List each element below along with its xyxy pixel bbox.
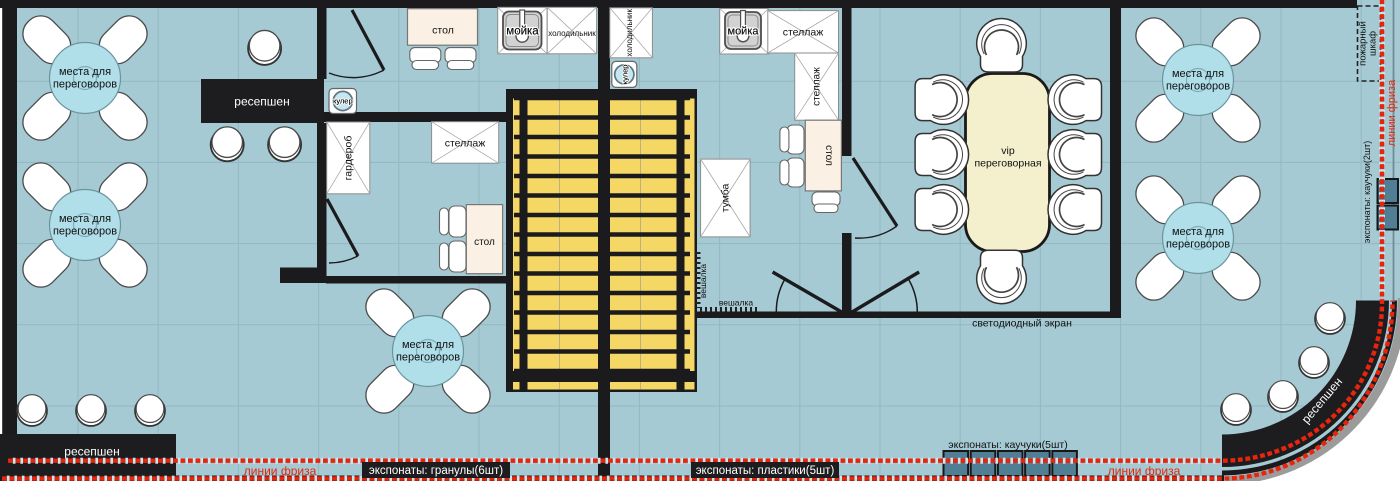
svg-text:холодильник: холодильник [548, 29, 596, 38]
svg-text:экспонаты: гранулы(6шт): экспонаты: гранулы(6шт) [369, 465, 503, 477]
svg-text:экспонаты: каучуки(2шт): экспонаты: каучуки(2шт) [1362, 141, 1372, 243]
svg-text:вешалка: вешалка [698, 264, 708, 299]
svg-text:кулер: кулер [620, 65, 629, 85]
svg-text:вешалка: вешалка [719, 298, 754, 308]
svg-text:переговорная: переговорная [974, 158, 1041, 170]
svg-text:ресепшен: ресепшен [64, 445, 119, 459]
svg-text:стол: стол [432, 25, 454, 37]
svg-text:кулер: кулер [333, 97, 353, 106]
svg-text:гардероб: гардероб [343, 136, 355, 181]
svg-text:мойка: мойка [506, 26, 539, 38]
svg-text:мойка: мойка [728, 26, 760, 38]
svg-text:стол: стол [474, 237, 495, 248]
svg-text:светодиодный экран: светодиодный экран [972, 318, 1072, 330]
svg-text:линии фриза: линии фриза [1386, 79, 1398, 146]
svg-text:экспонаты: пластики(5шт): экспонаты: пластики(5шт) [696, 465, 835, 477]
svg-text:экспонаты: каучуки(5шт): экспонаты: каучуки(5шт) [948, 439, 1067, 451]
svg-text:стеллаж: стеллаж [812, 67, 823, 106]
svg-text:тумба: тумба [720, 183, 732, 212]
svg-text:стол: стол [823, 145, 834, 166]
svg-text:vip: vip [1001, 145, 1015, 157]
svg-text:стеллаж: стеллаж [783, 27, 824, 39]
svg-text:шкаф: шкаф [1368, 31, 1379, 56]
svg-text:холодильник: холодильник [625, 9, 634, 57]
svg-text:ресепшен: ресепшен [234, 95, 289, 109]
svg-text:стеллаж: стеллаж [445, 138, 486, 150]
